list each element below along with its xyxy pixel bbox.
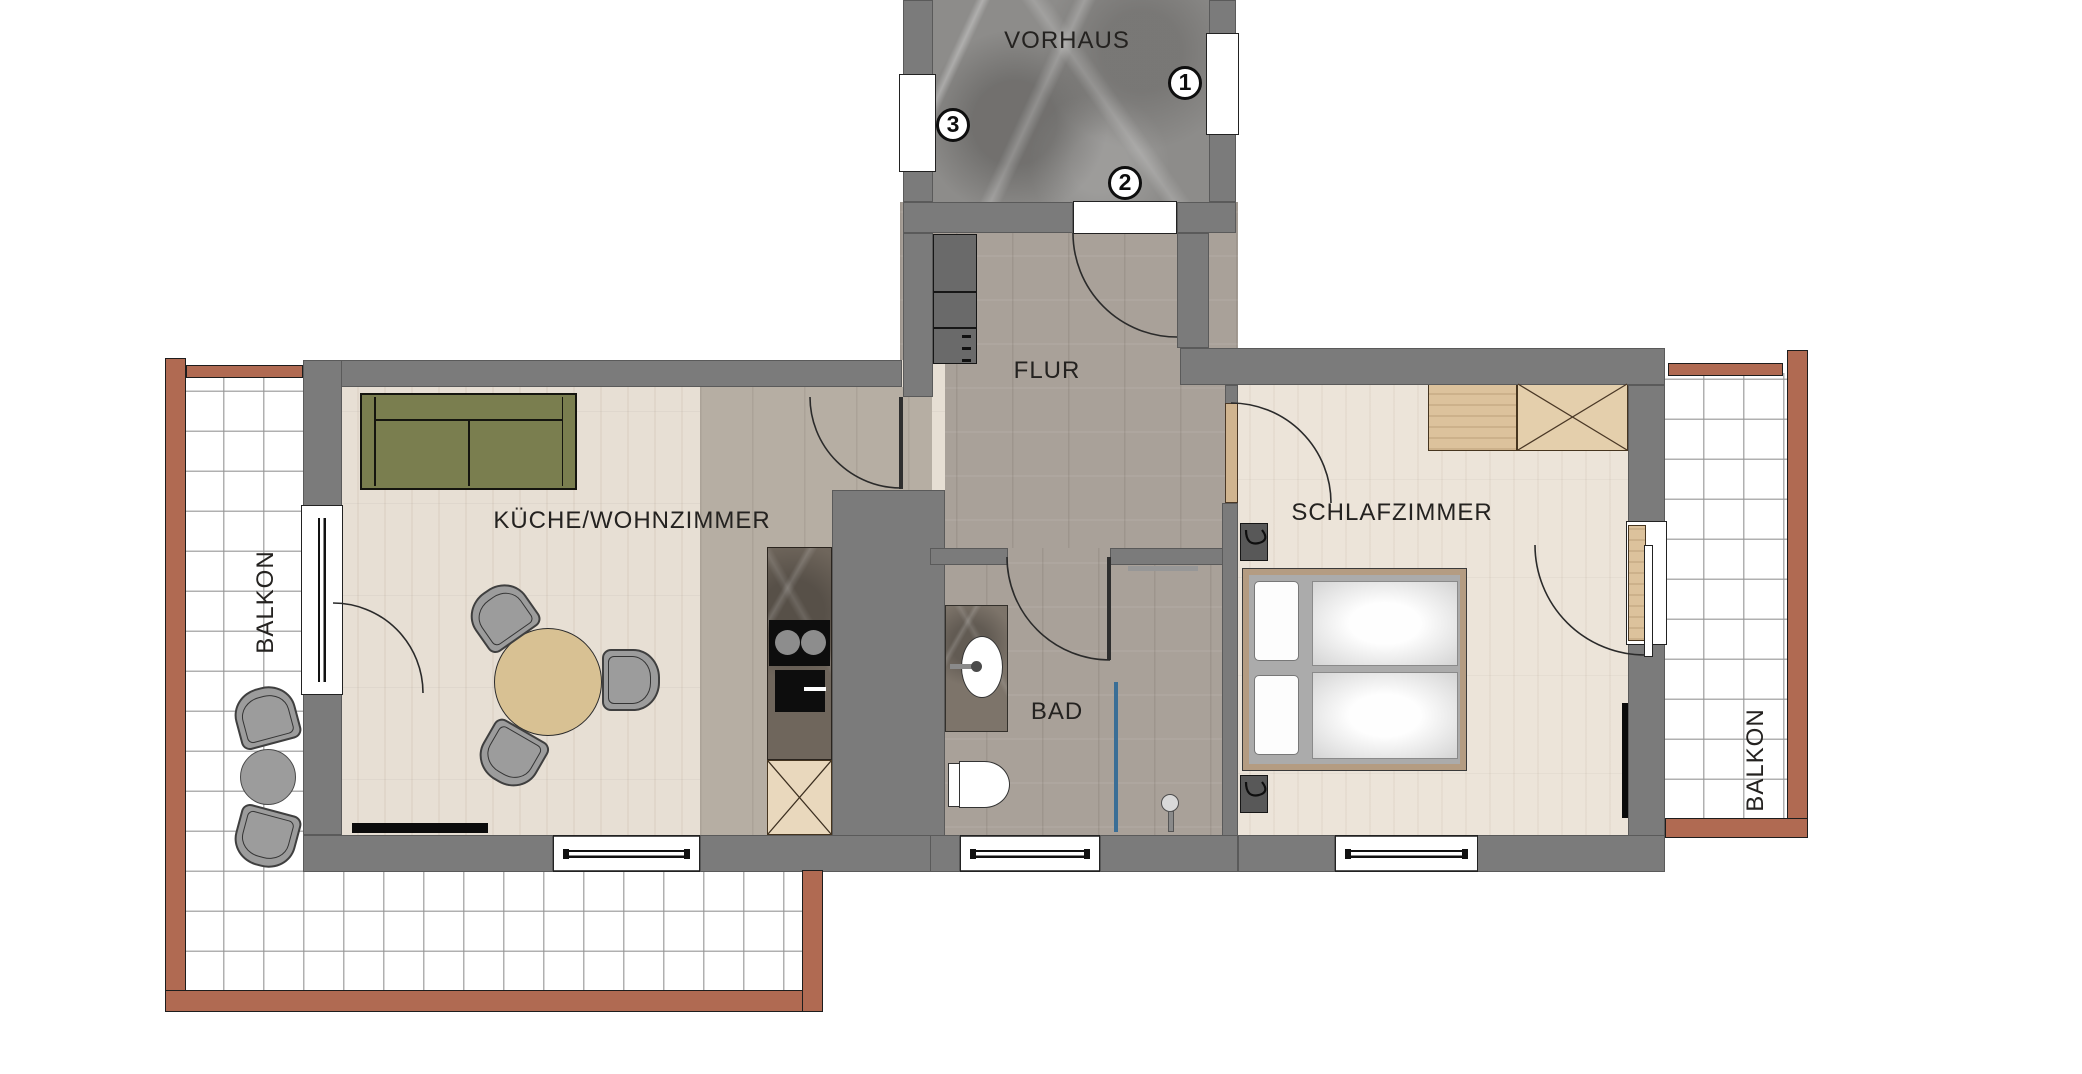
lamp-hook-icon — [1246, 530, 1265, 543]
room-label-schlafzimmer: SCHLAFZIMMER — [1291, 499, 1492, 527]
door-swing-arc — [1231, 403, 1331, 503]
room-label-kueche-wohnzimmer: KÜCHE/WOHNZIMMER — [493, 507, 770, 535]
door-swing-arc — [1073, 233, 1177, 337]
door-swing-arc — [810, 397, 901, 488]
room-label-vorhaus: VORHAUS — [1004, 27, 1130, 55]
room-label-bad: BAD — [1031, 698, 1083, 726]
door-swing-arc — [1007, 557, 1110, 660]
room-label-flur: FLUR — [1014, 357, 1081, 385]
room-label-balkon-left: BALKON — [252, 550, 280, 653]
door-swing-arc — [1535, 545, 1645, 655]
lamp-hook-icon — [1246, 782, 1265, 795]
marker-2: 2 — [1108, 166, 1142, 200]
door-swing-arc — [333, 603, 423, 693]
floor-plan: VORHAUS FLUR KÜCHE/WOHNZIMMER BAD SCHLAF… — [0, 0, 2082, 1074]
marker-3: 3 — [936, 108, 970, 142]
marker-1: 1 — [1168, 66, 1202, 100]
room-label-balkon-right: BALKON — [1742, 708, 1770, 811]
plan-symbol-overlay — [0, 0, 2082, 1074]
